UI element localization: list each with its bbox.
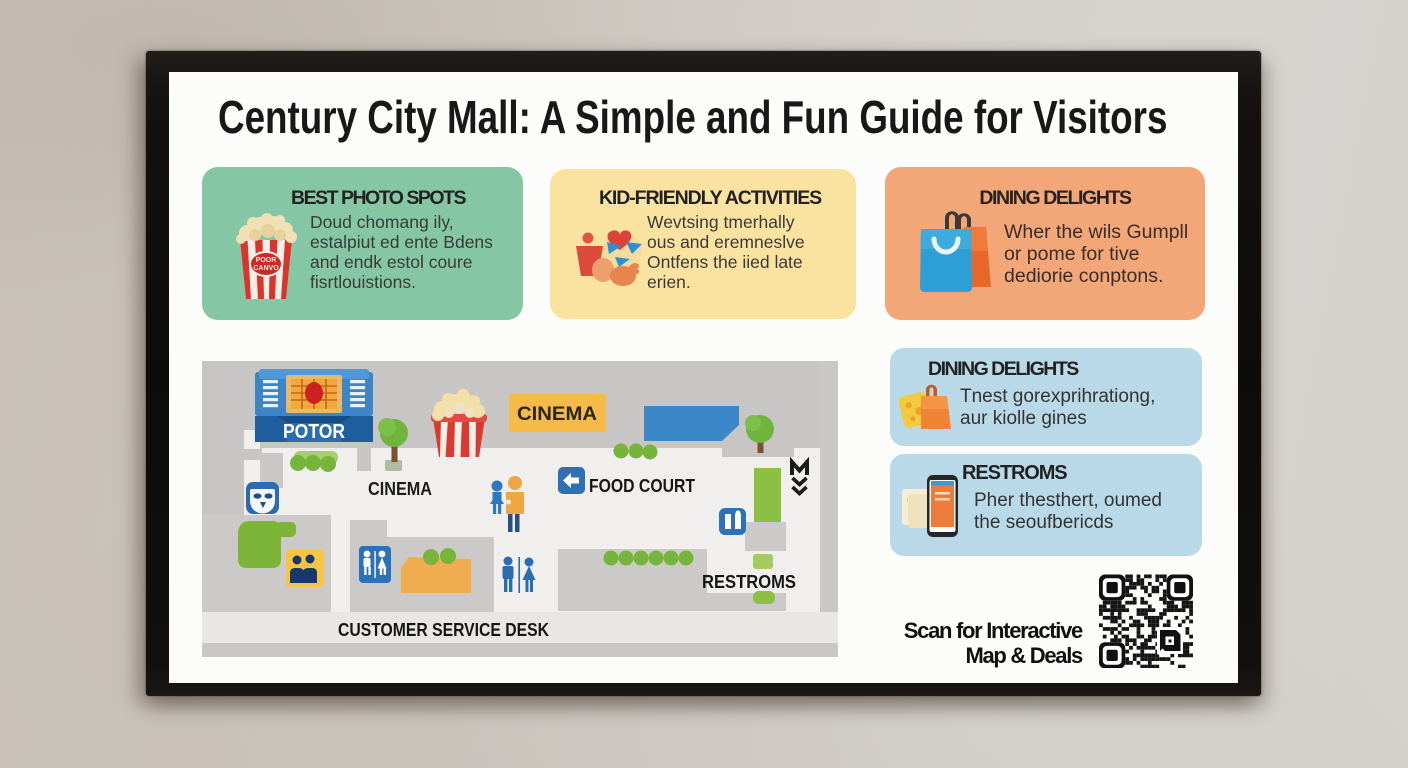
svg-text:CANVO: CANVO [253, 265, 279, 272]
svg-text:POOR: POOR [256, 257, 277, 264]
svg-text:RESTROMS: RESTROMS [702, 572, 796, 592]
svg-text:CINEMA: CINEMA [368, 479, 432, 499]
svg-text:CUSTOMER SERVICE DESK: CUSTOMER SERVICE DESK [338, 619, 550, 640]
svg-text:POTOR: POTOR [283, 421, 345, 443]
svg-text:FOOD COURT: FOOD COURT [589, 475, 696, 496]
svg-text:CINEMA: CINEMA [517, 404, 597, 425]
